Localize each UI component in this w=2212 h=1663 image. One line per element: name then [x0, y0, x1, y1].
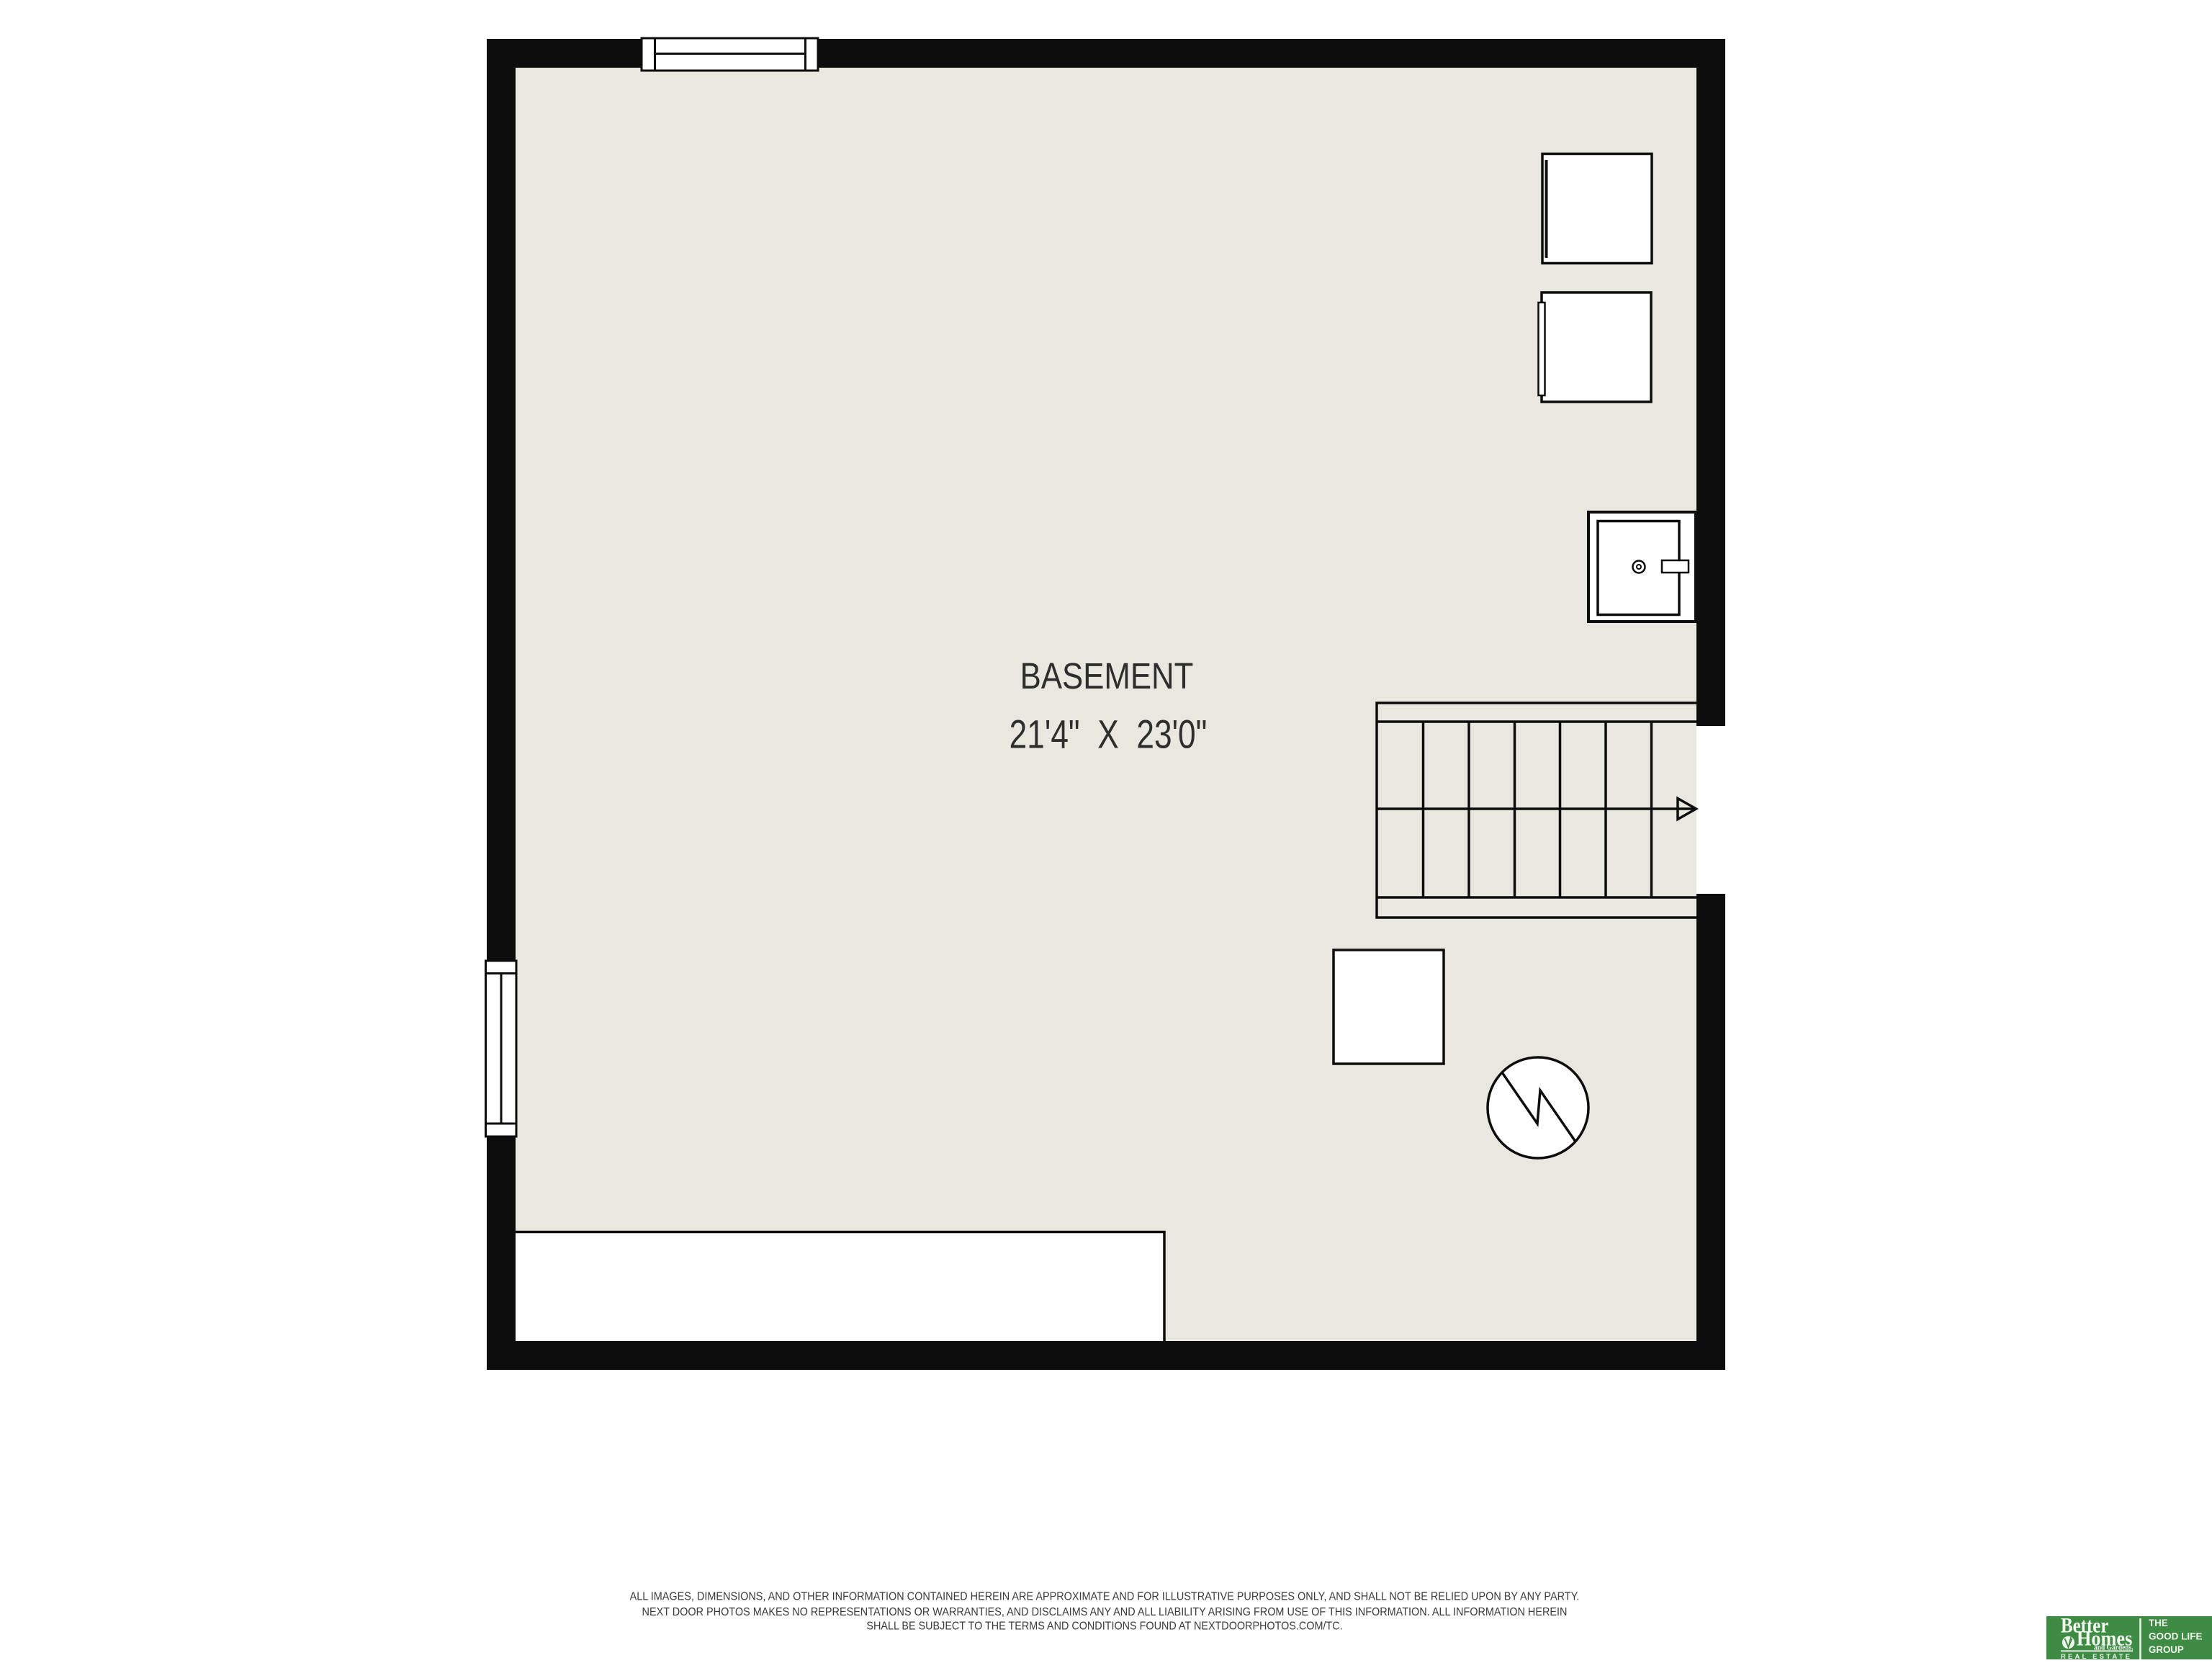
- svg-text:GOOD LIFE: GOOD LIFE: [2149, 1631, 2203, 1641]
- svg-text:NEXT DOOR PHOTOS MAKES NO REPR: NEXT DOOR PHOTOS MAKES NO REPRESENTATION…: [642, 1606, 1568, 1618]
- svg-text:ALL IMAGES, DIMENSIONS, AND OT: ALL IMAGES, DIMENSIONS, AND OTHER INFORM…: [630, 1591, 1580, 1603]
- svg-text:THE: THE: [2149, 1618, 2168, 1628]
- svg-text:21'4" X 23'0": 21'4" X 23'0": [1010, 711, 1208, 756]
- svg-text:REAL ESTATE: REAL ESTATE: [2061, 1653, 2130, 1659]
- svg-text:BASEMENT: BASEMENT: [1020, 655, 1194, 696]
- svg-text:GROUP: GROUP: [2149, 1644, 2184, 1655]
- svg-text:SHALL BE SUBJECT TO THE TERMS: SHALL BE SUBJECT TO THE TERMS AND CONDIT…: [866, 1620, 1342, 1632]
